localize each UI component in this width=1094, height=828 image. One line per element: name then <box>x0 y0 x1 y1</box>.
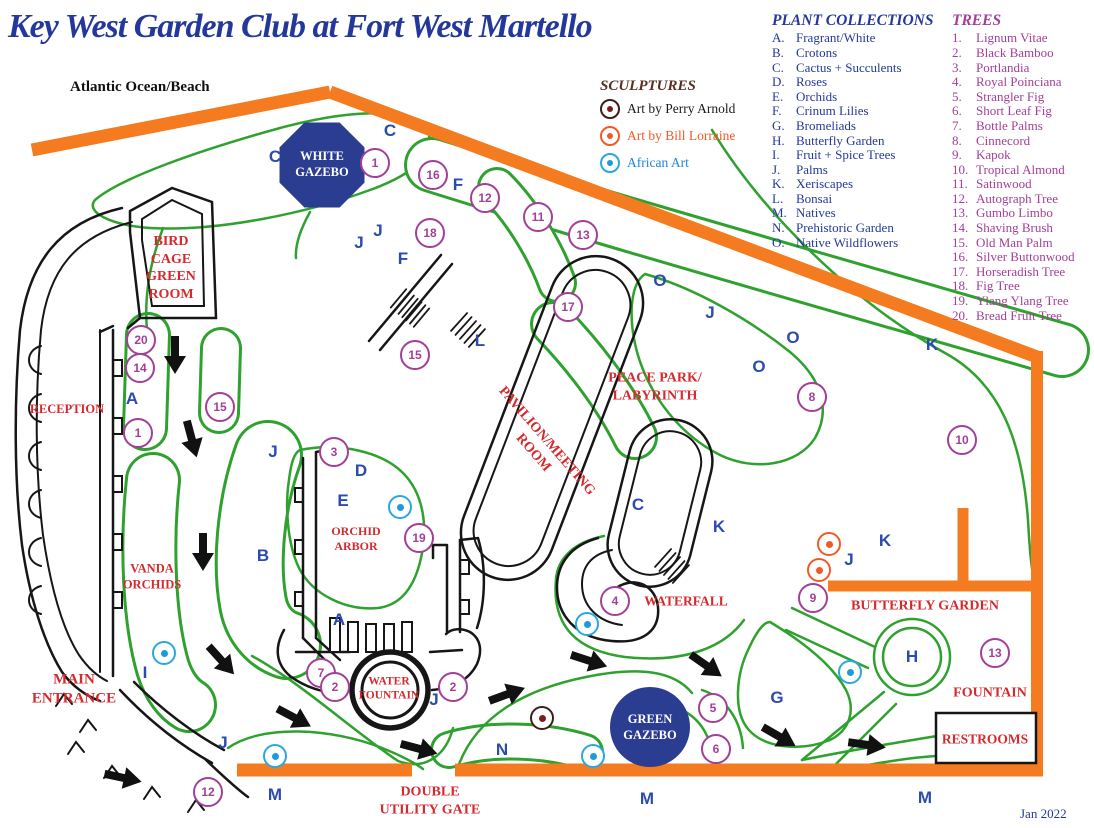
plant-collection-item-key: K. <box>772 177 796 192</box>
sculpture-legend-item-african: African Art <box>600 153 780 173</box>
area-letter-J: J <box>373 221 382 241</box>
tree-item-name: Strangler Fig <box>976 90 1044 105</box>
sculptures-legend-items: Art by Perry ArnoldArt by Bill LorraineA… <box>600 99 780 173</box>
plant-collection-item-key: H. <box>772 134 796 149</box>
tree-item: 1.Lignum Vitae <box>952 31 1094 46</box>
plant-collection-item-name: Prehistoric Garden <box>796 221 894 236</box>
plant-collection-item-key: F. <box>772 104 796 119</box>
tree-marker-13: 13 <box>980 638 1010 668</box>
area-letter-M: M <box>640 789 654 809</box>
plant-collection-item-key: M. <box>772 206 796 221</box>
sculpture-legend-label: Art by Perry Arnold <box>627 101 735 116</box>
area-letter-I: I <box>143 663 148 683</box>
tree-item-name: Cinnecord <box>976 134 1030 149</box>
tree-item-name: Horseradish Tree <box>976 265 1065 280</box>
area-letter-F: F <box>453 175 463 195</box>
tree-marker-4: 4 <box>600 586 630 616</box>
bill-marker-icon <box>600 126 620 146</box>
tree-item: 8.Cinnecord <box>952 134 1094 149</box>
plant-collection-item-name: Crinum Lilies <box>796 104 869 119</box>
place-label-line: FOUNTAIN <box>359 689 419 703</box>
african-sculpture-marker <box>263 744 287 768</box>
african-marker-dot <box>607 160 613 166</box>
tree-item-key: 6. <box>952 104 976 119</box>
tree-item-name: Satinwood <box>976 177 1032 192</box>
area-letter-J: J <box>705 303 714 323</box>
african-sculpture-dot <box>161 650 168 657</box>
area-letter-C: C <box>632 495 644 515</box>
area-letter-J: J <box>844 550 853 570</box>
area-letter-F: F <box>398 249 408 269</box>
plant-collection-item-name: Native Wildflowers <box>796 236 898 251</box>
plant-collection-item-key: C. <box>772 61 796 76</box>
plant-collection-item-key: A. <box>772 31 796 46</box>
place-label-waterfall: WATERFALL <box>644 594 728 611</box>
plant-collection-item-name: Fruit + Spice Trees <box>796 148 895 163</box>
area-letter-J: J <box>268 442 277 462</box>
tree-item: 2.Black Bamboo <box>952 46 1094 61</box>
tree-marker-15: 15 <box>205 392 235 422</box>
plant-collection-item: O.Native Wildflowers <box>772 236 950 251</box>
tree-marker-12: 12 <box>193 777 223 807</box>
white-gazebo-label: WHITEGAZEBO <box>295 148 349 181</box>
tree-item-key: 16. <box>952 250 976 265</box>
plant-collection-item-key: B. <box>772 46 796 61</box>
tree-item-key: 7. <box>952 119 976 134</box>
ocean-label: Atlantic Ocean/Beach <box>70 79 210 96</box>
perry-sculpture-dot <box>539 715 546 722</box>
tree-item-name: Royal Poinciana <box>976 75 1062 90</box>
tree-item-key: 3. <box>952 61 976 76</box>
tree-item: 4.Royal Poinciana <box>952 75 1094 90</box>
tree-item: 11.Satinwood <box>952 177 1094 192</box>
plant-collection-item: F.Crinum Lilies <box>772 104 950 119</box>
tree-marker-8: 8 <box>797 382 827 412</box>
plant-collection-item-key: N. <box>772 221 796 236</box>
african-sculpture-marker <box>388 495 412 519</box>
tree-marker-1: 1 <box>123 418 153 448</box>
area-letter-K: K <box>879 531 891 551</box>
tree-item-name: Ylang Ylang Tree <box>976 294 1069 309</box>
path-arrow-icon <box>191 533 215 573</box>
tree-marker-13: 13 <box>568 220 598 250</box>
tree-item: 15.Old Man Palm <box>952 236 1094 251</box>
plant-collection-item: C.Cactus + Succulents <box>772 61 950 76</box>
area-letter-D: D <box>355 461 367 481</box>
african-sculpture-dot <box>584 621 591 628</box>
area-letter-J: J <box>354 233 363 253</box>
tree-item-key: 15. <box>952 236 976 251</box>
gazebo-label-line: GAZEBO <box>623 727 677 743</box>
tree-item-key: 12. <box>952 192 976 207</box>
area-letter-O: O <box>786 328 799 348</box>
bill-sculpture-dot <box>826 541 833 548</box>
tree-item-name: Gumbo Limbo <box>976 206 1053 221</box>
area-letter-A: A <box>333 610 345 630</box>
place-label-restrooms: RESTROOMS <box>942 732 1028 749</box>
plant-collection-item-name: Orchids <box>796 90 837 105</box>
place-label-line: ENTRANCE <box>32 689 116 708</box>
plant-collection-item-key: J. <box>772 163 796 178</box>
area-letter-O: O <box>653 271 666 291</box>
bill-sculpture-marker <box>817 532 841 556</box>
tree-item-key: 4. <box>952 75 976 90</box>
plant-collection-item-name: Fragrant/White <box>796 31 875 46</box>
tree-marker-16: 16 <box>418 160 448 190</box>
page-title: Key West Garden Club at Fort West Martel… <box>8 8 592 46</box>
bill-sculpture-dot <box>816 567 823 574</box>
place-label-line: ORCHIDS <box>123 577 181 593</box>
trees-legend-items: 1.Lignum Vitae2.Black Bamboo3.Portlandia… <box>952 31 1094 323</box>
tree-item: 20.Bread Fruit Tree <box>952 309 1094 324</box>
plant-collections-legend: PLANT COLLECTIONS A.Fragrant/WhiteB.Crot… <box>772 12 950 250</box>
place-label-line: UTILITY GATE <box>380 801 481 819</box>
tree-item-name: Kapok <box>976 148 1011 163</box>
plant-collection-item: G.Bromeliads <box>772 119 950 134</box>
plant-collection-item: L.Bonsai <box>772 192 950 207</box>
plant-collection-item: E.Orchids <box>772 90 950 105</box>
place-label-main-entrance: MAINENTRANCE <box>32 670 116 708</box>
plant-collections-title: PLANT COLLECTIONS <box>772 12 950 29</box>
sculptures-legend-title: SCULPTURES <box>600 78 780 95</box>
area-letter-H: H <box>906 647 918 667</box>
area-letter-K: K <box>926 335 938 355</box>
tree-item-key: 1. <box>952 31 976 46</box>
date-label: Jan 2022 <box>1020 806 1067 822</box>
tree-item-key: 14. <box>952 221 976 236</box>
plant-collection-item-key: E. <box>772 90 796 105</box>
place-label-line: BIRD <box>146 233 196 251</box>
place-label-butterfly-garden: BUTTERFLY GARDEN <box>851 597 999 615</box>
area-letter-C: C <box>269 147 281 167</box>
plant-collection-item-key: O. <box>772 236 796 251</box>
tree-item-name: Shaving Brush <box>976 221 1053 236</box>
tree-item: 3.Portlandia <box>952 61 1094 76</box>
tree-item: 14.Shaving Brush <box>952 221 1094 236</box>
area-letter-K: K <box>713 517 725 537</box>
tree-marker-20: 20 <box>126 325 156 355</box>
tree-item-name: Fig Tree <box>976 279 1020 294</box>
place-label-line: RECEPTION <box>30 402 104 418</box>
area-letter-M: M <box>268 785 282 805</box>
plant-collection-item-key: I. <box>772 148 796 163</box>
tree-marker-9: 9 <box>798 583 828 613</box>
area-letter-L: L <box>475 331 485 351</box>
plant-collection-item-key: L. <box>772 192 796 207</box>
tree-item-name: Lignum Vitae <box>976 31 1048 46</box>
tree-marker-19: 19 <box>404 523 434 553</box>
tree-item-key: 13. <box>952 206 976 221</box>
place-label-bird-cage-green-room: BIRDCAGEGREENROOM <box>146 233 196 303</box>
area-letter-M: M <box>918 788 932 808</box>
plant-collection-item-name: Bromeliads <box>796 119 856 134</box>
bill-sculpture-marker <box>807 558 831 582</box>
tree-item-name: Tropical Almond <box>976 163 1065 178</box>
sculptures-legend: SCULPTURES Art by Perry ArnoldArt by Bil… <box>600 78 780 180</box>
african-sculpture-marker <box>581 744 605 768</box>
plant-collection-item-name: Bonsai <box>796 192 832 207</box>
trees-legend-title: TREES <box>952 12 1094 29</box>
plant-collection-item-name: Roses <box>796 75 827 90</box>
place-label-line: PEACE PARK/ <box>608 370 701 388</box>
tree-marker-2: 2 <box>438 672 468 702</box>
gazebo-label-line: GAZEBO <box>295 164 349 180</box>
area-letter-C: C <box>384 121 396 141</box>
plant-collection-item-name: Palms <box>796 163 828 178</box>
tree-item-key: 17. <box>952 265 976 280</box>
tree-item: 12.Autograph Tree <box>952 192 1094 207</box>
place-label-fountain: FOUNTAIN <box>953 684 1027 702</box>
tree-marker-5: 5 <box>698 693 728 723</box>
tree-item: 10.Tropical Almond <box>952 163 1094 178</box>
tree-item: 16.Silver Buttonwood <box>952 250 1094 265</box>
plant-collection-item: M.Natives <box>772 206 950 221</box>
tree-marker-14: 14 <box>125 353 155 383</box>
place-label-orchid-arbor: ORCHIDARBOR <box>331 524 380 554</box>
tree-item-key: 2. <box>952 46 976 61</box>
plant-collection-item-name: Natives <box>796 206 836 221</box>
place-label-double-utility-gate: DOUBLEUTILITY GATE <box>380 784 481 819</box>
tree-item-name: Autograph Tree <box>976 192 1058 207</box>
tree-item: 9.Kapok <box>952 148 1094 163</box>
place-label-line: LABYRINTH <box>608 387 701 405</box>
area-letter-G: G <box>770 688 783 708</box>
plant-collection-item: H.Butterfly Garden <box>772 134 950 149</box>
place-label-line: BUTTERFLY GARDEN <box>851 597 999 615</box>
tree-item-name: Old Man Palm <box>976 236 1053 251</box>
tree-item-key: 18. <box>952 279 976 294</box>
place-label-line: WATER <box>359 675 419 689</box>
tree-item: 18.Fig Tree <box>952 279 1094 294</box>
tree-item: 19.Ylang Ylang Tree <box>952 294 1094 309</box>
tree-item: 6.Short Leaf Fig <box>952 104 1094 119</box>
perry-marker-dot <box>607 106 613 112</box>
perry-marker-icon <box>600 99 620 119</box>
tree-item-name: Bottle Palms <box>976 119 1043 134</box>
tree-marker-10: 10 <box>947 425 977 455</box>
green-gazebo-label: GREENGAZEBO <box>623 711 677 744</box>
tree-marker-12: 12 <box>470 183 500 213</box>
place-label-line: FOUNTAIN <box>953 684 1027 702</box>
tree-item-key: 8. <box>952 134 976 149</box>
area-letter-A: A <box>126 389 138 409</box>
tree-item-name: Portlandia <box>976 61 1029 76</box>
tree-item-name: Short Leaf Fig <box>976 104 1052 119</box>
area-letter-O: O <box>752 357 765 377</box>
place-label-vanda-orchids: VANDAORCHIDS <box>123 561 181 592</box>
area-letter-J: J <box>429 690 438 710</box>
plant-collection-item-key: D. <box>772 75 796 90</box>
plant-collection-item-name: Cactus + Succulents <box>796 61 902 76</box>
tree-marker-15: 15 <box>400 340 430 370</box>
plant-collection-item-key: G. <box>772 119 796 134</box>
plant-collection-item-name: Crotons <box>796 46 837 61</box>
tree-marker-11: 11 <box>523 202 553 232</box>
tree-item: 17.Horseradish Tree <box>952 265 1094 280</box>
perry-sculpture-marker <box>530 706 554 730</box>
plant-collection-item: D.Roses <box>772 75 950 90</box>
tree-marker-17: 17 <box>553 292 583 322</box>
place-label-line: WATERFALL <box>644 594 728 611</box>
place-label-line: ORCHID <box>331 524 380 539</box>
place-label-line: ARBOR <box>331 539 380 554</box>
sculpture-legend-label: African Art <box>627 155 689 170</box>
african-sculpture-marker <box>575 612 599 636</box>
tree-marker-18: 18 <box>415 218 445 248</box>
tree-item-name: Black Bamboo <box>976 46 1054 61</box>
path-arrow-icon <box>163 336 187 376</box>
tree-marker-3: 3 <box>319 437 349 467</box>
tree-item-key: 9. <box>952 148 976 163</box>
plant-collection-item: A.Fragrant/White <box>772 31 950 46</box>
sculpture-legend-label: Art by Bill Lorraine <box>627 128 735 143</box>
plant-collection-item-name: Butterfly Garden <box>796 134 884 149</box>
tree-marker-1: 1 <box>360 148 390 178</box>
tree-marker-2: 2 <box>320 672 350 702</box>
place-label-reception: RECEPTION <box>30 402 104 418</box>
african-marker-icon <box>600 153 620 173</box>
plant-collection-item: I.Fruit + Spice Trees <box>772 148 950 163</box>
african-sculpture-dot <box>397 504 404 511</box>
bill-marker-dot <box>607 133 613 139</box>
african-sculpture-dot <box>272 753 279 760</box>
place-label-line: DOUBLE <box>380 784 481 802</box>
place-label-line: RESTROOMS <box>942 732 1028 749</box>
area-letter-N: N <box>496 740 508 760</box>
gazebo-label-line: GREEN <box>623 711 677 727</box>
place-label-line: MAIN <box>32 670 116 689</box>
african-sculpture-marker <box>838 660 862 684</box>
place-label-peace-park-labyrinth: PEACE PARK/LABYRINTH <box>608 370 701 405</box>
place-label-line: ROOM <box>146 286 196 304</box>
plant-collection-item: K.Xeriscapes <box>772 177 950 192</box>
plant-collection-item-name: Xeriscapes <box>796 177 853 192</box>
tree-item: 13.Gumbo Limbo <box>952 206 1094 221</box>
tree-item-key: 20. <box>952 309 976 324</box>
place-label-water-fountain: WATERFOUNTAIN <box>359 675 419 704</box>
gazebo-label-line: WHITE <box>295 148 349 164</box>
tree-item: 7.Bottle Palms <box>952 119 1094 134</box>
tree-item-key: 5. <box>952 90 976 105</box>
tree-item-name: Silver Buttonwood <box>976 250 1075 265</box>
plant-collection-item: J.Palms <box>772 163 950 178</box>
garden-map-page: Key West Garden Club at Fort West Martel… <box>0 0 1094 828</box>
area-letter-E: E <box>337 491 348 511</box>
trees-legend: TREES 1.Lignum Vitae2.Black Bamboo3.Port… <box>952 12 1094 323</box>
african-sculpture-marker <box>152 641 176 665</box>
plant-collection-item: B.Crotons <box>772 46 950 61</box>
place-label-line: CAGE <box>146 251 196 269</box>
area-letter-J: J <box>218 733 227 753</box>
tree-item-key: 19. <box>952 294 976 309</box>
place-label-line: GREEN <box>146 268 196 286</box>
african-sculpture-dot <box>847 669 854 676</box>
sculpture-legend-item-perry: Art by Perry Arnold <box>600 99 780 119</box>
tree-item-key: 11. <box>952 177 976 192</box>
tree-marker-6: 6 <box>701 734 731 764</box>
plant-collections-items: A.Fragrant/WhiteB.CrotonsC.Cactus + Succ… <box>772 31 950 250</box>
tree-item-key: 10. <box>952 163 976 178</box>
area-letter-B: B <box>257 546 269 566</box>
place-label-line: VANDA <box>123 561 181 577</box>
sculpture-legend-item-bill: Art by Bill Lorraine <box>600 126 780 146</box>
african-sculpture-dot <box>590 753 597 760</box>
tree-item-name: Bread Fruit Tree <box>976 309 1062 324</box>
tree-item: 5.Strangler Fig <box>952 90 1094 105</box>
plant-collection-item: N.Prehistoric Garden <box>772 221 950 236</box>
